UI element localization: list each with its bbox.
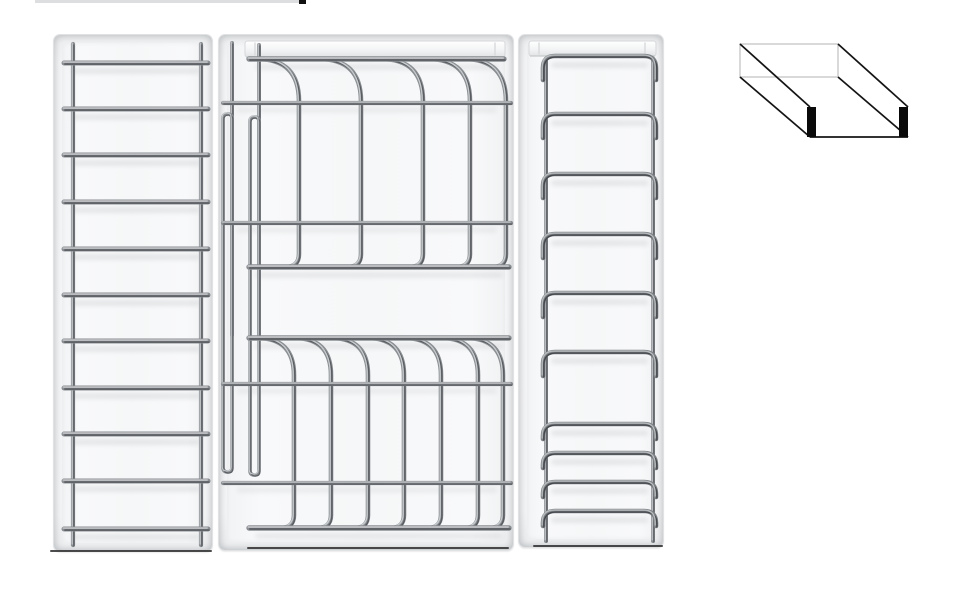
wire-rack-ladder[interactable] bbox=[53, 34, 213, 552]
tray-base-shadow bbox=[50, 550, 212, 552]
drawer-orientation-diagram bbox=[735, 40, 915, 145]
cropped-item-bottom-edge bbox=[35, 0, 301, 3]
wire-rack-arch-hoops[interactable] bbox=[518, 34, 664, 548]
tray-base-shadow bbox=[533, 545, 663, 547]
wire-rack-plate-holder[interactable] bbox=[218, 34, 514, 551]
product-montage bbox=[0, 0, 973, 600]
arch-rack-render bbox=[519, 35, 665, 549]
cropped-item-corner-mark bbox=[299, 0, 306, 4]
ladder-rack-render bbox=[54, 35, 214, 553]
plate-rack-render bbox=[219, 35, 515, 552]
tray-base-shadow bbox=[247, 547, 509, 549]
